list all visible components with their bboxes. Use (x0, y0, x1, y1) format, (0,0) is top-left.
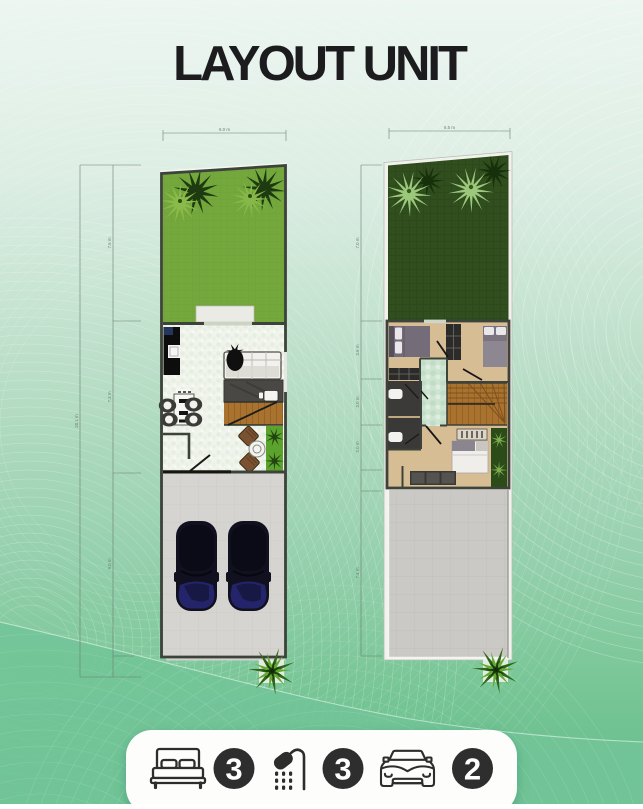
svg-text:LAYOUT UNIT: LAYOUT UNIT (173, 37, 468, 91)
svg-text:2: 2 (464, 752, 481, 787)
svg-text:6.5 m: 6.5 m (444, 125, 455, 130)
svg-text:6.0 m: 6.0 m (219, 127, 230, 132)
svg-text:3: 3 (334, 752, 351, 787)
svg-text:7.0 m: 7.0 m (355, 237, 360, 248)
svg-text:7.4 m: 7.4 m (355, 567, 360, 578)
svg-text:7.3 m: 7.3 m (107, 391, 112, 402)
svg-text:9.0 m: 9.0 m (107, 558, 112, 569)
svg-text:2.0 m: 2.0 m (355, 396, 360, 407)
svg-text:7.5 m: 7.5 m (107, 237, 112, 248)
svg-text:2.6 m: 2.6 m (355, 344, 360, 355)
svg-text:2.0 m: 2.0 m (355, 441, 360, 452)
svg-text:3: 3 (225, 752, 242, 787)
svg-text:20.1 m: 20.1 m (74, 414, 79, 428)
